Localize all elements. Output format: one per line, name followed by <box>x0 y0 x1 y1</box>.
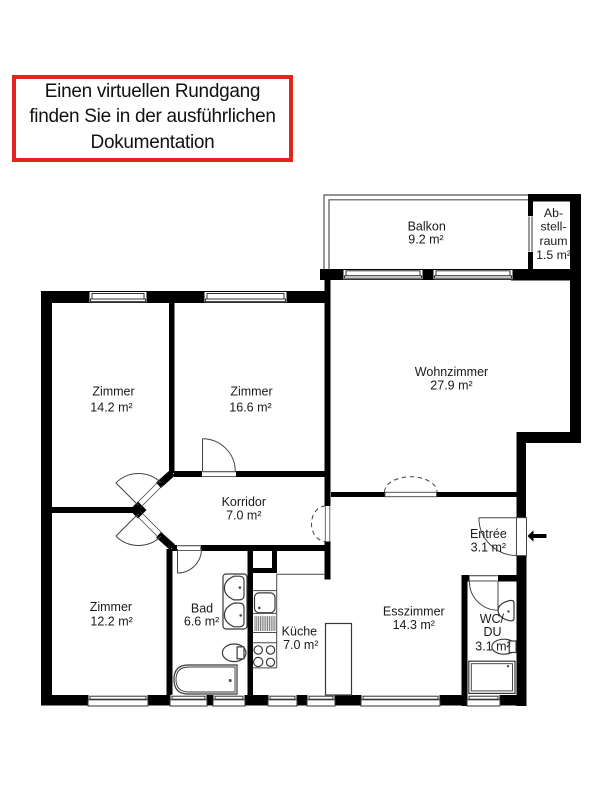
svg-text:Entrée: Entrée <box>470 527 507 541</box>
svg-text:Balkon: Balkon <box>408 220 446 234</box>
svg-text:Zimmer: Zimmer <box>230 385 272 399</box>
svg-text:27.9 m²: 27.9 m² <box>430 379 472 393</box>
svg-text:6.6 m²: 6.6 m² <box>184 615 219 629</box>
svg-text:7.0 m²: 7.0 m² <box>226 509 261 523</box>
svg-text:16.6 m²: 16.6 m² <box>229 401 271 415</box>
svg-text:Wohnzimmer: Wohnzimmer <box>415 365 488 379</box>
svg-text:12.2 m²: 12.2 m² <box>90 614 132 628</box>
svg-text:3.1 m²: 3.1 m² <box>471 541 506 555</box>
svg-text:Esszimmer: Esszimmer <box>383 605 445 619</box>
svg-text:DU: DU <box>483 625 501 639</box>
svg-text:9.2 m²: 9.2 m² <box>408 233 443 247</box>
svg-text:stell-: stell- <box>541 220 567 234</box>
svg-text:Küche: Küche <box>282 625 317 639</box>
svg-text:WC/: WC/ <box>480 612 505 626</box>
svg-text:Zimmer: Zimmer <box>92 385 134 399</box>
svg-text:14.2 m²: 14.2 m² <box>90 401 132 415</box>
svg-text:1.5 m²: 1.5 m² <box>536 248 571 262</box>
svg-text:Bad: Bad <box>191 601 213 615</box>
svg-text:Ab-: Ab- <box>544 206 563 220</box>
svg-text:Zimmer: Zimmer <box>90 600 132 614</box>
svg-text:3.1 m²: 3.1 m² <box>475 640 510 654</box>
svg-text:14.3 m²: 14.3 m² <box>393 618 435 632</box>
svg-text:7.0 m²: 7.0 m² <box>283 638 318 652</box>
svg-text:raum: raum <box>539 234 567 248</box>
svg-text:Korridor: Korridor <box>222 495 266 509</box>
